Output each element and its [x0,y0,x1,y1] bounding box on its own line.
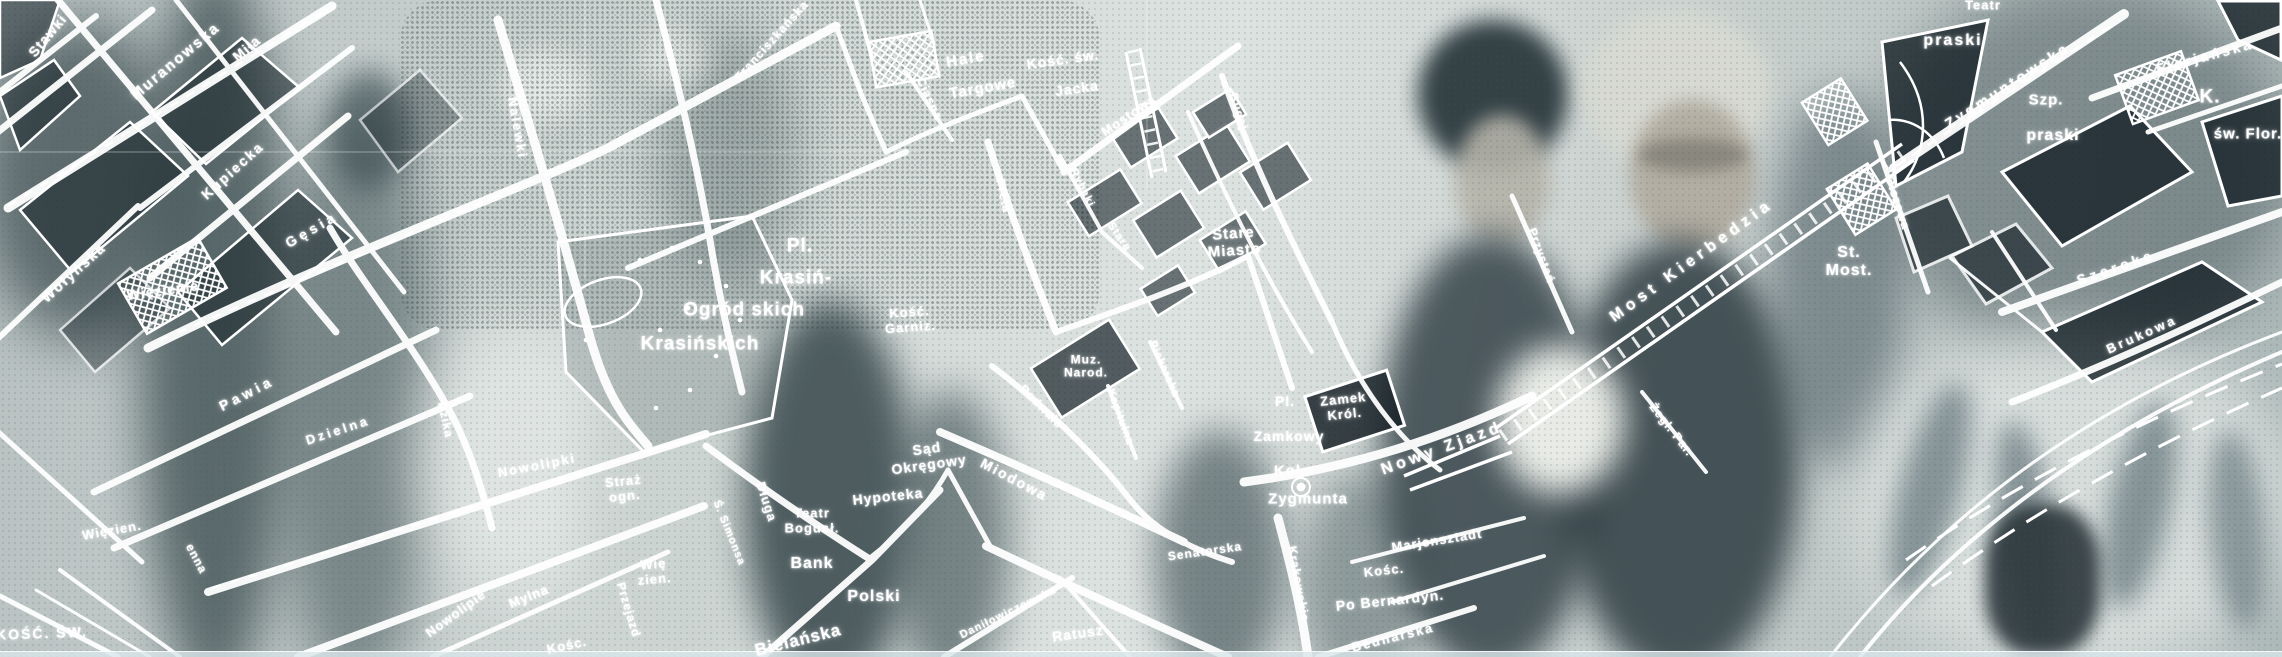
map-label: praski [2026,127,2079,145]
map-label: Miła [230,33,264,65]
map-label: Marjensztadt [1391,527,1484,556]
map-label: Targowe [948,75,1017,103]
map-label: Zamkowy [1254,429,1325,445]
map-label: Zygmunta [1268,492,1348,509]
map-label: Kośc. [546,635,589,657]
map-label: Dzielna [304,414,372,448]
map-label: Senatorska [1167,540,1243,564]
map-label: Kapitulna [1104,387,1136,447]
map-label: Rybaki [1067,166,1097,209]
map-label: Ciasna [913,76,944,123]
map-label: Jacka [1054,78,1100,100]
map-label: Kośc. [1363,562,1405,581]
map-label: Olszowa [1882,174,1912,231]
map-label: Przystań [1525,226,1557,285]
map-label: KOŚĆ. ŚW. [0,625,88,644]
map-label: praski [1923,32,1982,50]
map-label: K. [2200,86,2221,107]
map-label: Podwale [1017,383,1066,432]
map-label: Mylna [507,582,551,611]
map-label: Daniłowiczowska [958,584,1058,641]
map-label: Hypoteka [852,485,924,508]
map-label: Wię zien. [636,556,672,588]
map-label: Zamek Król. [1320,390,1369,424]
map-label: Muranowska [128,20,224,104]
map-label: Krakowskie [1285,545,1312,623]
map-label: Stawki [26,12,70,61]
map-label: Piekarska [1146,339,1182,399]
map-label: Wołyńska [39,240,110,306]
map-label: Straż ogn. [604,473,644,506]
map-label: Stare Miasto [1206,224,1262,261]
map-label: Nowy Zjazd [1379,419,1505,480]
map-label: Stara [1105,220,1134,254]
map-label: Muz. Narod. [1064,354,1108,381]
map-labels-layer: StawkiMuranowskaMiłaKupieckaGęsiaWołyńsk… [0,0,2282,657]
map-label: enna [183,542,210,577]
map-label: Krasiń- [760,267,832,288]
warsaw-map-photomontage: StawkiMuranowskaMiłaKupieckaGęsiaWołyńsk… [0,0,2282,657]
map-label: Polski [847,588,900,606]
map-label: Teatr Bogusł. [785,506,840,535]
map-label: Ś. Simonsa [710,499,747,568]
map-label: Bugaj [1226,92,1251,133]
map-label: Nowolipie [423,587,488,640]
map-label: Żegl. Par. [1646,401,1696,459]
map-label: Szeroka [2075,247,2157,288]
map-label: Bielańska [753,620,843,657]
map-label: Miodowa [978,456,1051,505]
map-label: Freta [993,178,1013,214]
map-label: Hale [945,48,987,71]
map-label: Franciszkańska [732,0,811,84]
map-label: Teatr [1965,0,2001,13]
map-label: Kość. św. [1026,47,1101,73]
map-label: Przejazd [613,581,642,639]
map-label: Dzika [435,401,456,439]
map-label: Most Kierbedzia [1607,196,1777,327]
map-label: Pawia [217,373,277,414]
map-label: Sąd Okręgowy [888,436,967,478]
map-label: Szp. [2029,93,2064,110]
map-label: św. Flor. [2214,127,2282,144]
map-label: Pl. [787,235,813,256]
map-label: Gęsia [283,209,341,252]
map-label: Kupiecka [199,139,268,203]
map-label: Po Bernardyn. [1335,588,1445,615]
map-label: St. Most. [1826,244,1873,280]
map-label: Nalewki [504,96,529,160]
map-label: Kość. Garniz. [884,304,937,337]
map-label: Krasińskich [641,333,760,354]
map-label: Brukowa [2104,313,2179,357]
map-label: Ogród skich [683,299,805,320]
map-label: Nowolipki [497,451,578,480]
map-label: Mostowa [1099,92,1159,139]
map-label: Ratusz [1051,623,1105,646]
map-label: Pl. [1275,394,1295,410]
map-label: Florjańska [2155,36,2256,77]
map-label: Więzienie [126,278,200,304]
map-label: Kol. [1274,464,1306,481]
map-label: Więzien. [81,519,143,544]
map-label: Bank [790,555,833,573]
map-label: Bednarska [1350,621,1435,656]
map-label: Zygmuntowska [1943,40,2074,133]
map-label: Długa [753,480,780,524]
